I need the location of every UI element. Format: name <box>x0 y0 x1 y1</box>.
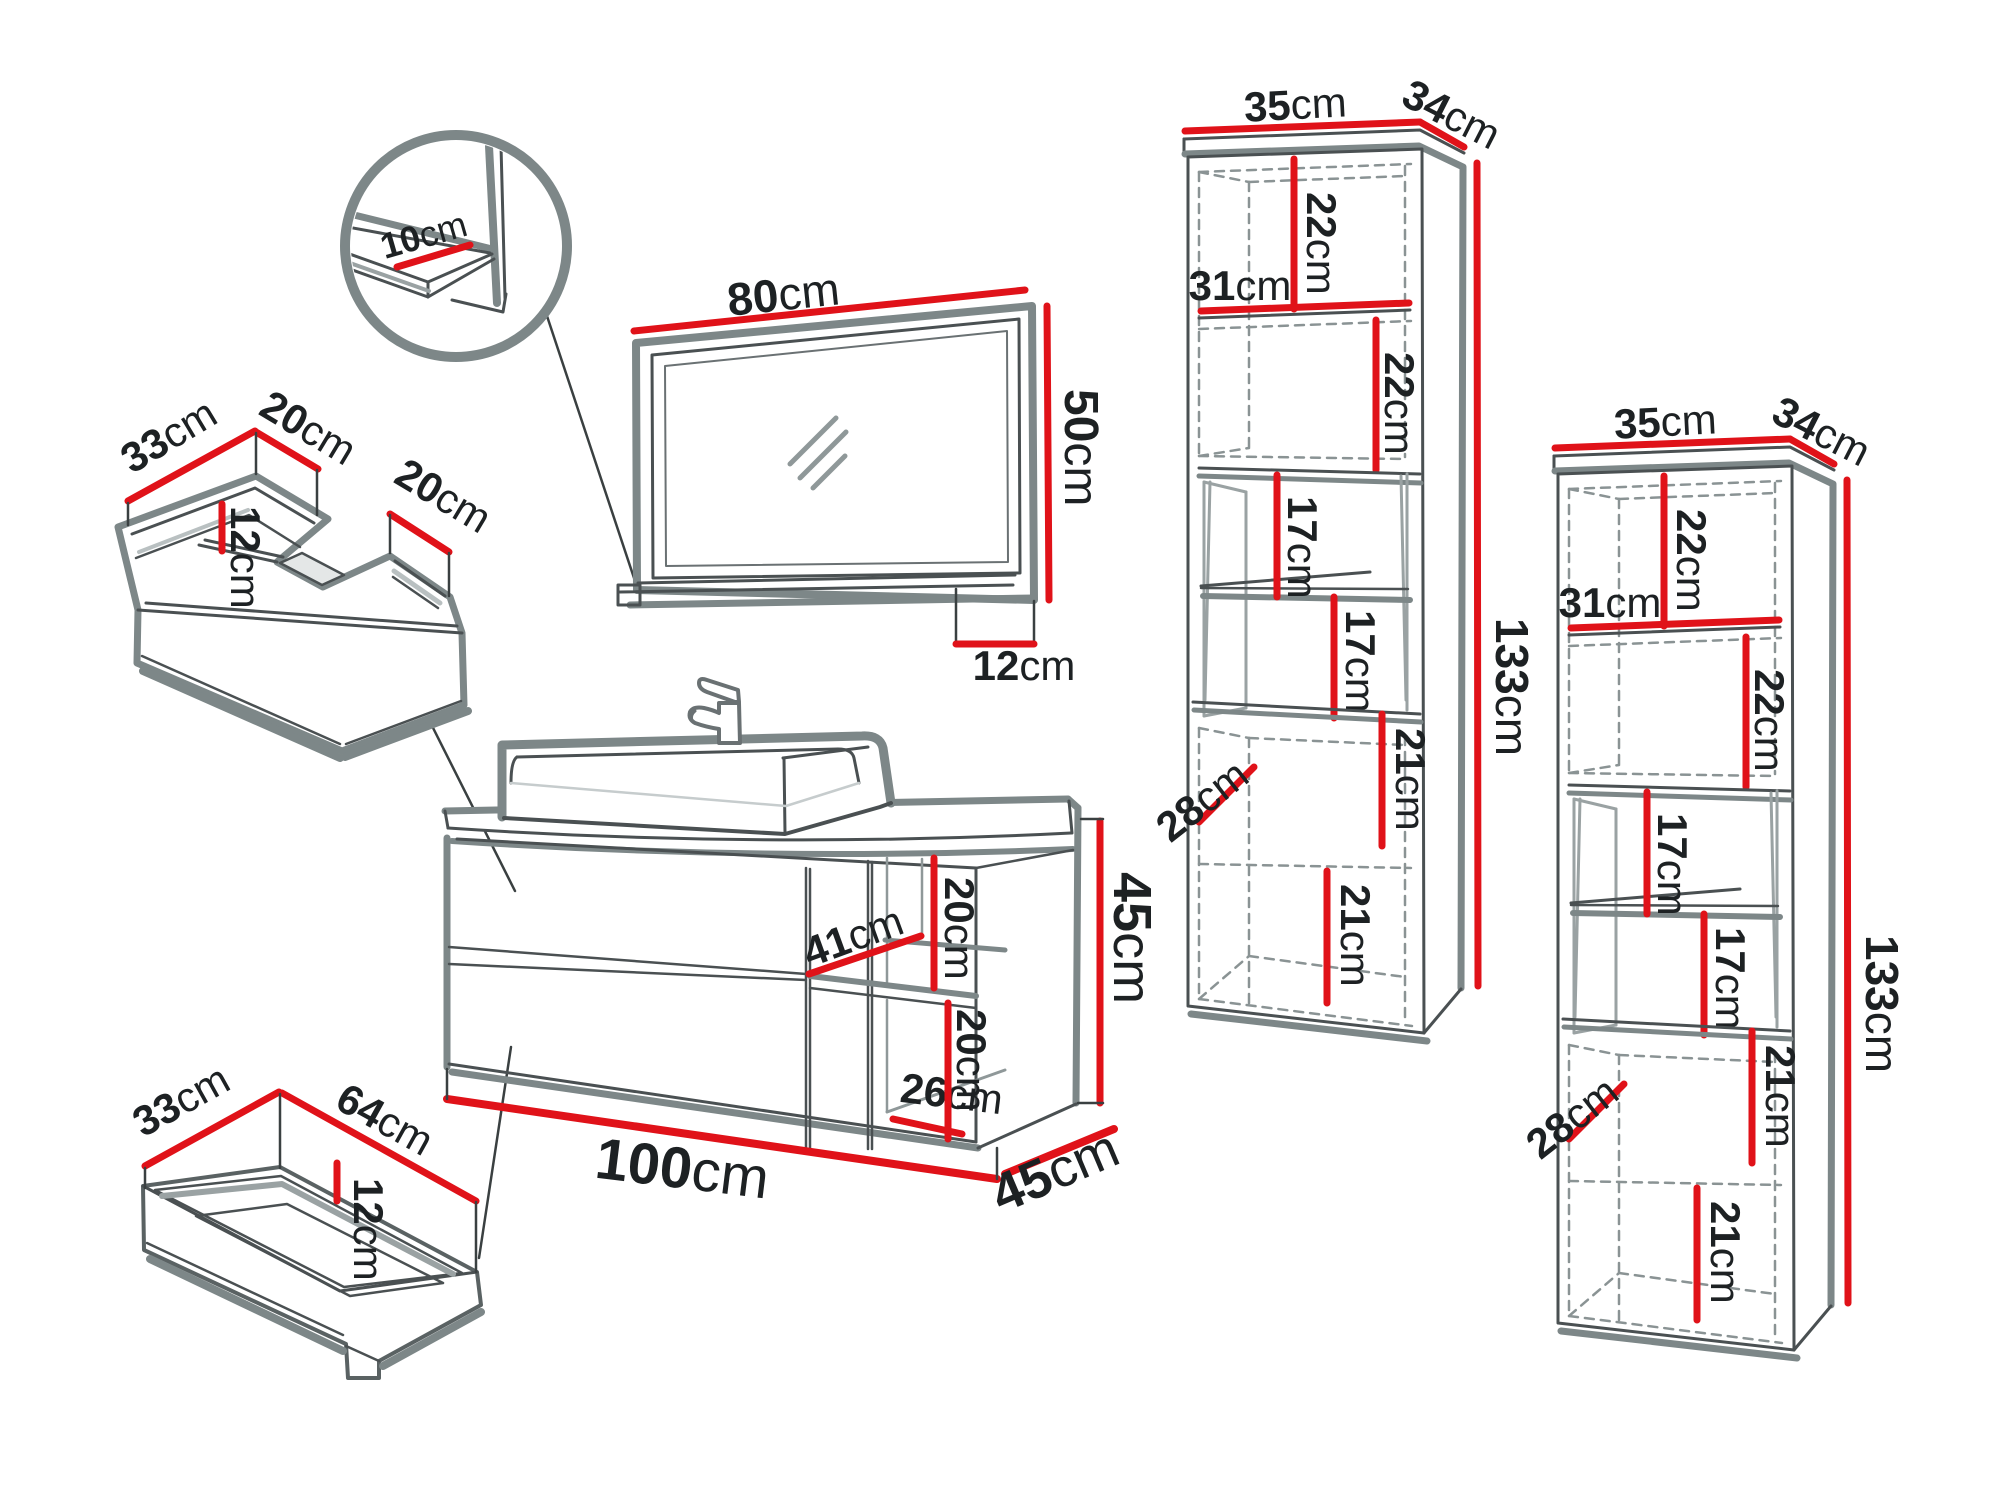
svg-text:20cm: 20cm <box>948 1009 995 1112</box>
svg-text:22cm: 22cm <box>1298 192 1345 295</box>
svg-text:33cm: 33cm <box>125 1055 238 1146</box>
svg-text:35cm: 35cm <box>1243 78 1348 130</box>
svg-text:41cm: 41cm <box>797 897 910 976</box>
svg-text:21cm: 21cm <box>1332 884 1379 987</box>
svg-text:45cm: 45cm <box>1102 872 1162 1004</box>
svg-text:12cm: 12cm <box>222 506 269 609</box>
svg-text:21cm: 21cm <box>1387 728 1434 831</box>
svg-text:50cm: 50cm <box>1054 389 1107 506</box>
svg-text:133cm: 133cm <box>1486 618 1538 756</box>
svg-text:12cm: 12cm <box>973 642 1076 689</box>
svg-text:31cm: 31cm <box>1189 262 1292 309</box>
svg-text:33cm: 33cm <box>112 389 224 482</box>
svg-text:80cm: 80cm <box>725 262 842 325</box>
svg-text:12cm: 12cm <box>345 1178 392 1281</box>
svg-text:20cm: 20cm <box>936 877 983 980</box>
svg-text:45cm: 45cm <box>982 1118 1127 1225</box>
svg-text:20cm: 20cm <box>387 449 499 542</box>
svg-text:22cm: 22cm <box>1376 352 1423 455</box>
svg-text:17cm: 17cm <box>1279 496 1326 599</box>
svg-text:17cm: 17cm <box>1337 610 1384 713</box>
